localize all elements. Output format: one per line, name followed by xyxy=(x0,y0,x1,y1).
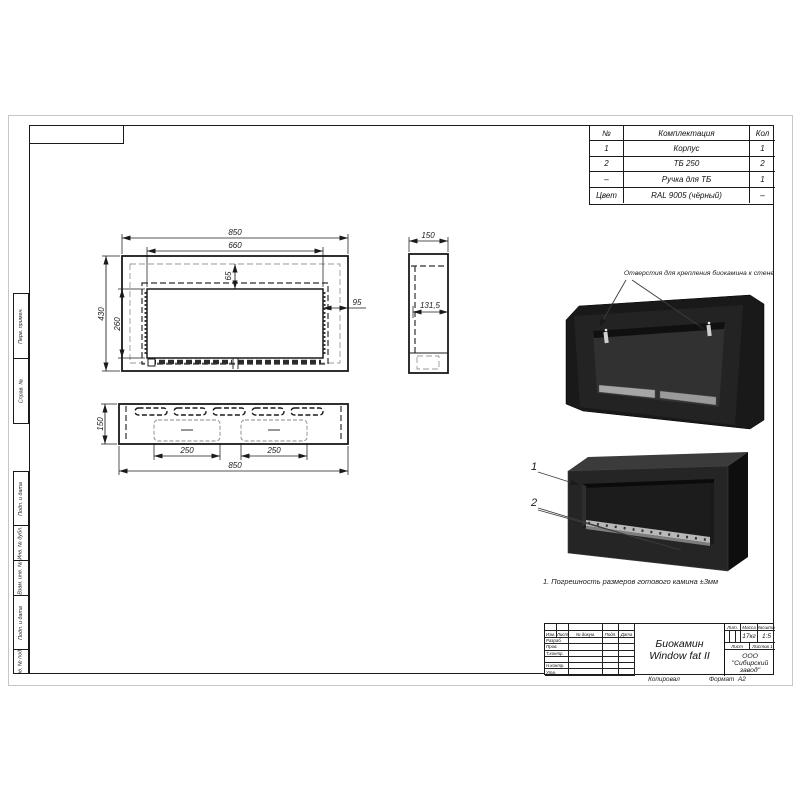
document-title-line2: Window fat II xyxy=(649,650,710,662)
bottom-view: 150 250 250 850 xyxy=(96,404,348,475)
dim-bottom-slot-right: 250 xyxy=(266,446,281,455)
page-canvas: Перв. примен. Справ. № Подп. и дата Инв.… xyxy=(0,0,800,800)
dim-front-opening-height: 260 xyxy=(113,317,122,332)
tb-lit-label: Лит. xyxy=(725,624,741,631)
document-title-line1: Биокамин xyxy=(655,638,703,650)
tolerance-note: 1. Погрешность размеров готового камина … xyxy=(543,577,718,586)
dim-front-height: 430 xyxy=(97,307,106,321)
tb-col-data: Дата xyxy=(619,631,635,638)
drawing-views: 850 660 430 260 65 95 xyxy=(9,116,794,687)
iso-view-front: 1 2 1. Погрешность размеров готового кам… xyxy=(530,452,748,586)
tb-mass-label: Масса xyxy=(741,624,758,631)
callout-1: 1 xyxy=(531,461,537,473)
dim-front-width: 850 xyxy=(228,228,242,237)
format-value: А2 xyxy=(738,676,746,683)
tb-sheets-label: Листов xyxy=(752,644,769,649)
copied-label: Копировал xyxy=(609,676,719,683)
dim-front-opening-width: 660 xyxy=(228,241,242,250)
format-label: Формат А2 xyxy=(709,676,746,683)
tb-col-izm: Изм. xyxy=(545,631,557,638)
format-word: Формат xyxy=(709,676,734,683)
side-view: 150 131,5 xyxy=(409,231,448,373)
title-block: Изм. Лист № докум. Подп. Дата Разраб. Пр… xyxy=(544,623,774,675)
document-title: Биокамин Window fat II xyxy=(635,624,725,676)
title-block-right: Лит. Масса Масштаб 17кг 1:5 Лист Листов … xyxy=(725,624,775,676)
tb-sheet-label: Лист xyxy=(725,643,750,650)
dim-bottom-slot-left: 250 xyxy=(179,446,194,455)
dim-front-side-inset: 95 xyxy=(353,298,362,307)
iso-view-rear: Отверстия для крепления биокамина к стен… xyxy=(566,269,774,429)
tb-sheets: Листов 1 xyxy=(750,643,775,650)
front-view: 850 660 430 260 65 95 xyxy=(97,228,366,371)
tb-mass-value: 17кг xyxy=(741,631,758,643)
dim-side-depth: 150 xyxy=(421,231,435,240)
dim-side-inner: 131,5 xyxy=(420,301,441,310)
mounting-annotation: Отверстия для крепления биокамина к стен… xyxy=(624,269,774,277)
tb-col-dokum: № докум. xyxy=(569,631,603,638)
dim-front-top-inset: 65 xyxy=(224,271,233,280)
tb-scale-value: 1:5 xyxy=(758,631,775,643)
title-block-signatures: Изм. Лист № докум. Подп. Дата Разраб. Пр… xyxy=(545,624,635,676)
tb-col-podp: Подп. xyxy=(603,631,619,638)
callout-2: 2 xyxy=(530,497,537,509)
tb-sheets-value: 1 xyxy=(770,644,773,649)
tb-company: ООО "Сибирский завод" xyxy=(725,650,775,676)
tb-row-utv: Утв. xyxy=(545,669,569,676)
drawing-sheet: Перв. примен. Справ. № Подп. и дата Инв.… xyxy=(8,115,793,686)
tb-scale-label: Масштаб xyxy=(758,624,775,631)
dim-bottom-width: 850 xyxy=(228,461,242,470)
tb-col-list: Лист xyxy=(557,631,569,638)
dim-bottom-depth: 150 xyxy=(96,417,105,431)
